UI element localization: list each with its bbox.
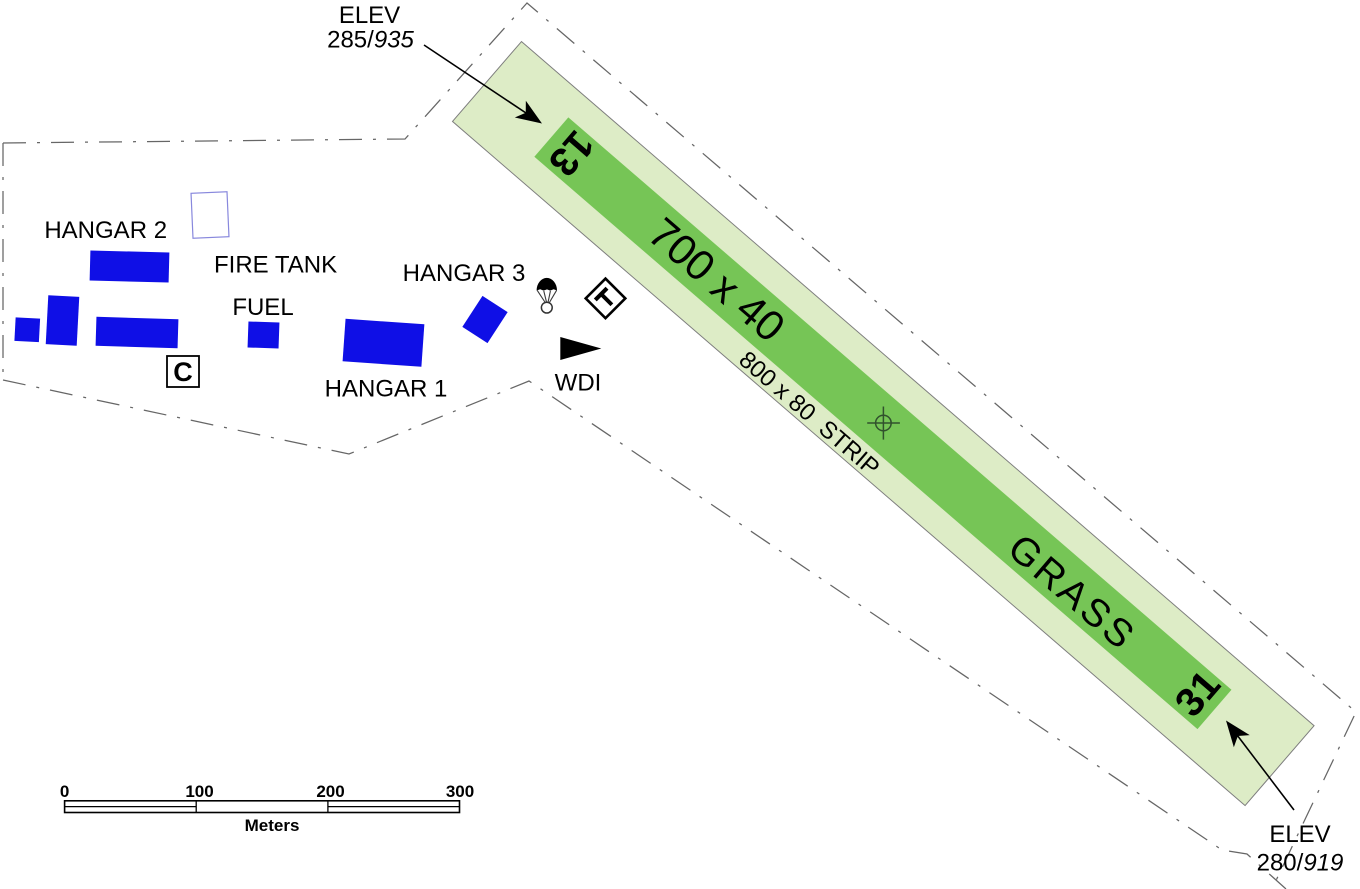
svg-text:WDI: WDI xyxy=(555,370,602,397)
svg-text:ELEV: ELEV xyxy=(1269,821,1330,848)
svg-text:0: 0 xyxy=(60,782,69,801)
svg-text:280/919: 280/919 xyxy=(1257,850,1344,877)
svg-text:ELEV: ELEV xyxy=(339,2,400,29)
svg-text:FUEL: FUEL xyxy=(232,294,293,321)
svg-text:Meters: Meters xyxy=(245,816,300,835)
svg-text:HANGAR 3: HANGAR 3 xyxy=(403,260,526,287)
svg-text:285/935: 285/935 xyxy=(327,27,414,54)
svg-text:HANGAR 1: HANGAR 1 xyxy=(325,376,448,403)
svg-text:300: 300 xyxy=(446,782,474,801)
svg-text:100: 100 xyxy=(185,782,213,801)
svg-text:C: C xyxy=(173,357,193,387)
svg-text:HANGAR 2: HANGAR 2 xyxy=(44,217,167,244)
svg-text:200: 200 xyxy=(316,782,344,801)
svg-text:FIRE TANK: FIRE TANK xyxy=(214,252,337,279)
